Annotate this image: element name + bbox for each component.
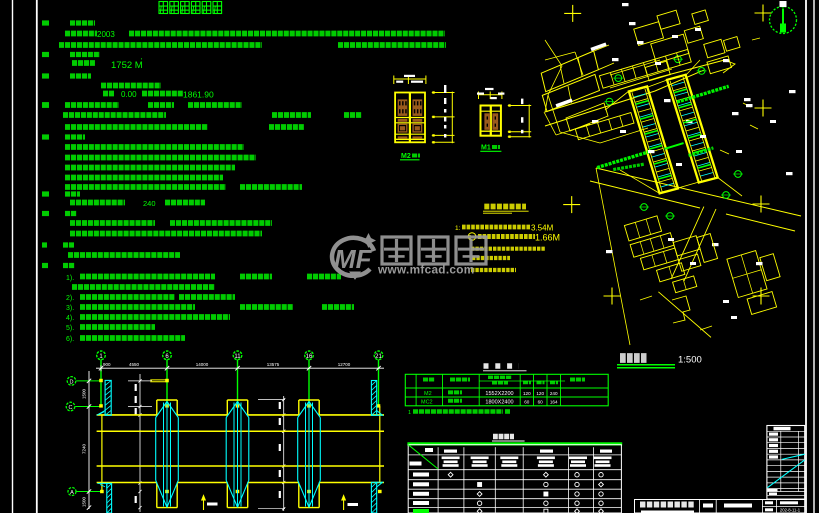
- svg-text:12700: 12700: [338, 362, 351, 367]
- svg-text:11: 11: [234, 354, 241, 360]
- svg-text:120: 120: [536, 391, 544, 396]
- svg-text:www.mfcad.com: www.mfcad.com: [377, 263, 475, 277]
- svg-text:60: 60: [538, 400, 544, 405]
- svg-text:1752 M: 1752 M: [111, 60, 143, 71]
- svg-text:2003: 2003: [97, 30, 115, 39]
- svg-text:3.54M: 3.54M: [531, 224, 554, 233]
- svg-text:5).: 5).: [66, 325, 74, 332]
- svg-text:C: C: [69, 405, 73, 411]
- svg-text:M1: M1: [481, 145, 491, 152]
- svg-text:6).: 6).: [66, 336, 74, 343]
- svg-text:1500: 1500: [82, 496, 87, 507]
- svg-text:14000: 14000: [196, 362, 209, 367]
- svg-text:2).: 2).: [66, 295, 74, 302]
- svg-text:4550: 4550: [129, 362, 140, 367]
- svg-text:1500: 1500: [82, 388, 87, 399]
- svg-text:16: 16: [306, 354, 313, 360]
- svg-text:240: 240: [143, 199, 156, 208]
- svg-text:1.66M: 1.66M: [535, 233, 560, 243]
- svg-text:M2: M2: [424, 391, 432, 397]
- svg-text:4).: 4).: [66, 315, 74, 322]
- svg-text:1:500: 1:500: [678, 355, 702, 366]
- svg-text:21: 21: [375, 354, 382, 360]
- svg-text:A: A: [70, 490, 74, 496]
- svg-text:1552X2200: 1552X2200: [485, 391, 513, 397]
- svg-text:1: 1: [408, 410, 411, 416]
- svg-text:3).: 3).: [66, 305, 74, 312]
- svg-text:240: 240: [550, 391, 558, 396]
- svg-text:900: 900: [103, 362, 111, 367]
- svg-text:1:: 1:: [455, 225, 461, 232]
- svg-text:1).: 1).: [66, 275, 74, 282]
- svg-text:': ': [141, 58, 142, 65]
- svg-text:MC2: MC2: [421, 400, 433, 406]
- svg-text:13575: 13575: [267, 362, 280, 367]
- svg-text:7240: 7240: [82, 443, 87, 454]
- svg-text:1800X2400: 1800X2400: [485, 400, 513, 406]
- svg-text:164: 164: [550, 400, 558, 405]
- svg-text:MF: MF: [334, 244, 373, 274]
- svg-text:D: D: [70, 379, 74, 385]
- svg-text:120: 120: [523, 391, 531, 396]
- svg-text:60: 60: [524, 400, 530, 405]
- svg-text:202-8-11-1: 202-8-11-1: [780, 508, 801, 513]
- svg-text:0.00: 0.00: [121, 90, 137, 99]
- svg-text:1861.90: 1861.90: [183, 90, 214, 100]
- svg-text:M2: M2: [401, 153, 411, 160]
